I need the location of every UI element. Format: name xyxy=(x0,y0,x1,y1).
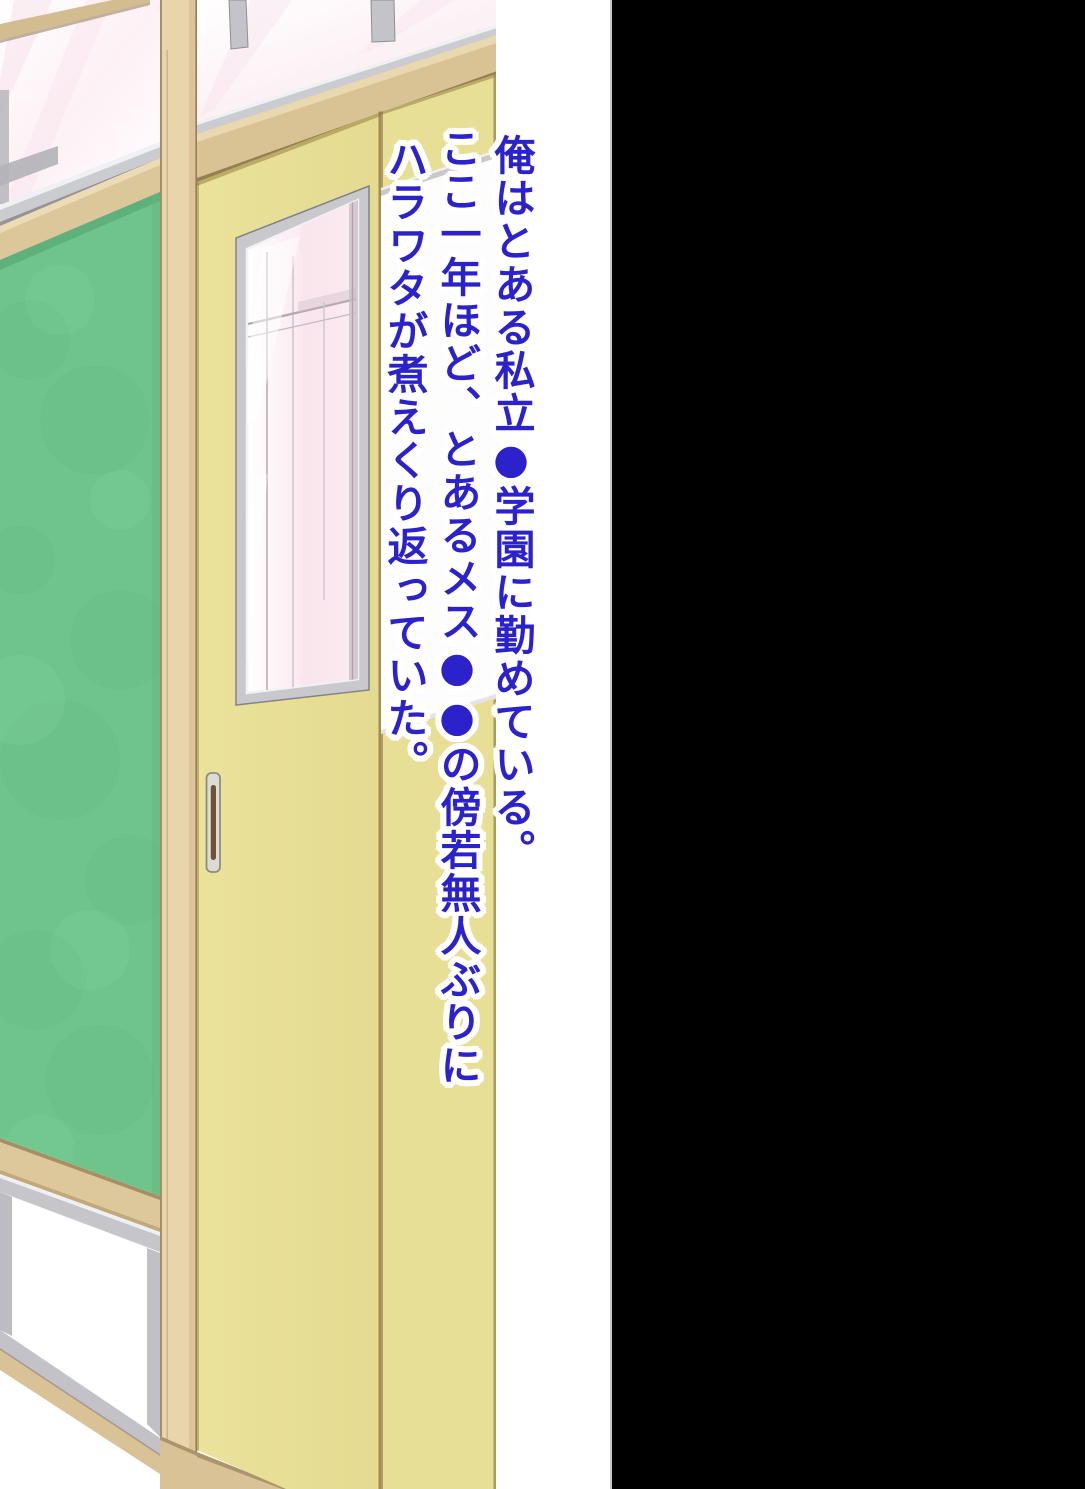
chalkboard-wall xyxy=(0,192,175,1196)
narration-column-3: ハラワタが煮えくり返っていた。 ハラワタが煮えくり返っていた。 xyxy=(379,138,429,783)
narration-line-1: 俺はとある私立●学園に勤めている。 xyxy=(486,134,536,872)
door-handle xyxy=(207,773,221,872)
narration-column-1: 俺はとある私立●学園に勤めている。 俺はとある私立●学園に勤めている。 xyxy=(486,134,536,872)
wood-pillar xyxy=(160,0,197,1460)
narration-line-3: ハラワタが煮えくり返っていた。 xyxy=(379,138,429,783)
door-window xyxy=(236,186,369,705)
narration-line-2: ここ一年ほど、とあるメス●●の傍若無人ぶりに xyxy=(432,127,482,1087)
narration-column-2: ここ一年ほど、とあるメス●●の傍若無人ぶりに ここ一年ほど、とあるメス●●の傍若… xyxy=(432,127,482,1087)
letterbox-panel xyxy=(612,0,1085,1489)
vn-screen[interactable]: 俺はとある私立●学園に勤めている。 俺はとある私立●学園に勤めている。 ここ一年… xyxy=(0,0,1085,1489)
